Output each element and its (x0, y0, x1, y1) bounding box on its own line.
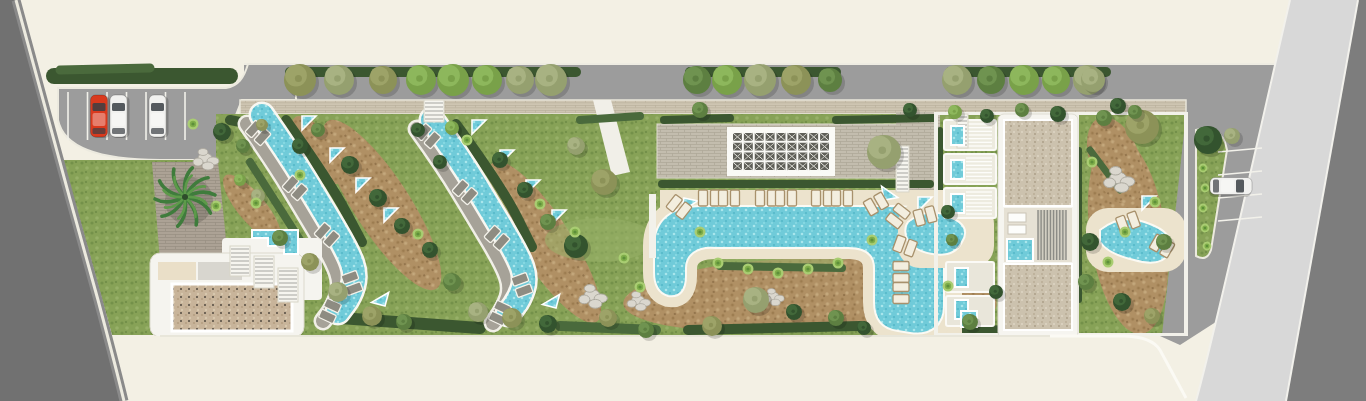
louver-block (966, 124, 992, 146)
tree-canopy-light (745, 65, 767, 87)
groundcover-bush (1103, 257, 1114, 268)
site-plan-rendering (0, 0, 1366, 401)
tree-canopy-light (903, 103, 913, 113)
tree-canopy-light (568, 137, 580, 149)
jacuzzi-pool (1008, 240, 1032, 260)
tree-canopy-light (1195, 127, 1214, 146)
tree-core (522, 187, 526, 191)
bush-core (698, 230, 701, 233)
groundcover-bush (1199, 204, 1208, 213)
tree-canopy-light (639, 322, 650, 333)
staircase (230, 246, 250, 276)
rock (1114, 183, 1128, 193)
lounger (756, 190, 765, 206)
bush-core (946, 284, 949, 287)
groundcover-bush (943, 281, 954, 292)
rock (635, 304, 646, 311)
bush-core (776, 271, 779, 274)
tree-canopy-light (285, 65, 307, 87)
tree-canopy-light (1114, 293, 1126, 305)
roof-gravel-south (1004, 264, 1072, 330)
bush-core (214, 204, 217, 207)
tree-core (643, 327, 647, 331)
bush-core (254, 201, 257, 204)
bush-core (836, 261, 839, 264)
tree-core (334, 75, 341, 82)
tree-core (295, 75, 302, 82)
rock (193, 158, 203, 166)
tree-core (297, 143, 301, 147)
white-car (149, 95, 169, 138)
tree-canopy-light (943, 66, 963, 86)
bush-core (1106, 260, 1109, 263)
tree-canopy-light (1082, 68, 1098, 84)
tree-canopy-light (363, 306, 377, 320)
tree-core (450, 126, 453, 129)
tree-core (1083, 279, 1087, 283)
tree-canopy-light (273, 230, 284, 241)
bush-core (298, 173, 301, 176)
tree-core (755, 75, 762, 82)
tree-canopy-light (980, 109, 990, 119)
bush-core (746, 267, 749, 270)
groundcover-bush (635, 282, 646, 293)
plunge-pool (951, 160, 964, 179)
palm-trunk (182, 194, 188, 200)
tree-canopy-light (600, 309, 612, 321)
tree-canopy-light (703, 316, 717, 330)
tree-canopy-light (989, 285, 999, 295)
rock (771, 299, 781, 305)
deck-furniture (1008, 213, 1026, 222)
red-car (91, 95, 111, 138)
bush-core (716, 261, 719, 264)
tree-canopy-light (302, 253, 314, 265)
lounger (719, 190, 728, 206)
rock (1110, 167, 1122, 175)
tree-canopy-light (423, 242, 434, 253)
tree-core (1161, 239, 1165, 243)
tree-core (256, 194, 259, 197)
tree-core (946, 210, 949, 213)
hedge-row (720, 266, 842, 268)
tree-canopy-light (256, 119, 264, 127)
tree-core (953, 110, 956, 113)
tree-core (238, 178, 241, 181)
tree-core (335, 289, 339, 293)
bush-core (416, 232, 419, 235)
tree-canopy-light (684, 67, 703, 86)
groundcover-bush (188, 119, 199, 130)
hedge-row (664, 118, 730, 120)
tree-canopy-light (342, 156, 354, 168)
rock (579, 295, 590, 304)
tree-core (1052, 76, 1058, 82)
groundcover-bush (743, 264, 754, 275)
tree-canopy-light (857, 321, 867, 331)
tree-canopy-light (541, 214, 552, 225)
tree-canopy-light (819, 68, 835, 84)
tree-core (427, 247, 431, 251)
groundcover-bush (1199, 164, 1208, 173)
car-rear-window (151, 128, 164, 134)
lounger (893, 295, 909, 304)
tree-core (605, 315, 609, 319)
tree-core (791, 309, 795, 313)
tree-core (994, 290, 997, 293)
staircase (278, 268, 298, 302)
bush-core (1206, 245, 1209, 248)
sidewalk (240, 100, 1186, 114)
tree-canopy-light (507, 67, 526, 86)
tree-canopy-light (787, 304, 798, 315)
groundcover-bush (1150, 197, 1161, 208)
car-roof (1221, 180, 1234, 193)
tree-core (952, 75, 959, 82)
tree-core (752, 296, 758, 302)
tree-core (1055, 111, 1059, 115)
lounger (788, 190, 797, 206)
bush-core (638, 285, 641, 288)
groundcover-bush (695, 227, 706, 238)
tree-core (1089, 76, 1094, 81)
tree-canopy-light (518, 182, 529, 193)
tree-canopy-light (1043, 67, 1062, 86)
tree-core (985, 114, 988, 117)
tree-canopy-light (311, 123, 321, 133)
staircase (424, 100, 444, 122)
tree-core (1019, 75, 1026, 82)
tree-canopy-light (370, 67, 389, 86)
tree-core (572, 242, 577, 247)
groundcover-bush (773, 268, 784, 279)
tree-core (908, 108, 911, 111)
tree-core (862, 326, 865, 329)
car-windshield (1236, 180, 1244, 193)
lounger (832, 190, 841, 206)
tree-canopy-light (1111, 98, 1122, 109)
tree-canopy-light (234, 174, 242, 182)
tree-canopy-light (493, 152, 504, 163)
tree-canopy-light (963, 314, 974, 325)
tree-canopy-light (1051, 106, 1062, 117)
tree-core (1119, 299, 1123, 303)
tree-canopy-light (946, 234, 954, 242)
bush-core (1123, 230, 1126, 233)
rock (584, 285, 595, 293)
tree-canopy-light (941, 205, 951, 215)
bush-core (1090, 160, 1093, 163)
hedge-row (580, 116, 640, 120)
tree-core (1020, 108, 1023, 111)
tree-core (573, 143, 577, 147)
car-windshield (151, 103, 164, 111)
foreground-plaza (0, 336, 1192, 401)
tree-core (950, 238, 953, 241)
car-roof (112, 113, 125, 126)
tree-core (987, 76, 993, 82)
courtyard-gravel (172, 284, 292, 331)
bush-core (1204, 227, 1207, 230)
hedge-row (836, 118, 934, 120)
bush-core (1153, 200, 1156, 203)
groundcover-bush (535, 199, 546, 210)
tree-core (509, 315, 513, 319)
groundcover-bush (1087, 157, 1098, 168)
tree-canopy-light (713, 66, 733, 86)
louver-block (966, 192, 992, 214)
roof-gravel-north (1004, 120, 1072, 206)
tree-canopy-light (868, 136, 891, 159)
tree-core (879, 147, 886, 154)
tree-core (347, 162, 351, 166)
car-windshield (93, 103, 106, 111)
tree-canopy-light (395, 218, 406, 229)
groundcover-bush (1120, 227, 1131, 238)
lounger (731, 190, 740, 206)
lounger (893, 283, 909, 292)
groundcover-bush (1201, 184, 1210, 193)
tree-core (1149, 313, 1153, 317)
rock (202, 162, 214, 170)
tree-canopy-light (1145, 308, 1156, 319)
lounger (812, 190, 821, 206)
white-car (110, 95, 130, 138)
pool-columns (649, 194, 656, 258)
tree-canopy-light (978, 67, 997, 86)
tree-core (697, 107, 701, 111)
tree-canopy-light (592, 170, 610, 188)
tree-core (1137, 122, 1144, 129)
tree-canopy-light (503, 308, 517, 322)
tree-core (693, 76, 699, 82)
groundcover-bush (619, 253, 630, 264)
tree-canopy-light (433, 155, 443, 165)
bush-core (538, 202, 541, 205)
light-patch (545, 218, 655, 262)
tree-core (219, 129, 223, 133)
tree-core (448, 75, 455, 82)
rock (198, 149, 208, 156)
bush-core (465, 138, 468, 141)
tree-core (260, 123, 263, 126)
groundcover-bush (570, 227, 581, 238)
tree-core (546, 75, 553, 82)
tree-core (1087, 239, 1091, 243)
rock (589, 299, 602, 308)
tree-canopy-light (1015, 103, 1025, 113)
groundcover-bush (803, 264, 814, 275)
tree-core (600, 178, 606, 184)
tree-core (316, 128, 319, 131)
lounger (893, 262, 909, 271)
groundcover-bush (1203, 242, 1212, 251)
rock (767, 288, 775, 294)
lounger (844, 190, 853, 206)
groundcover-bush (462, 135, 473, 146)
car-rear-window (112, 128, 125, 134)
car-rear-window (1213, 180, 1219, 193)
tree-canopy-light (693, 102, 704, 113)
tree-canopy-light (469, 302, 483, 316)
tree-canopy-light (214, 123, 226, 135)
tree-core (833, 315, 837, 319)
tree-core (1229, 133, 1233, 137)
tree-core (369, 313, 373, 317)
tree-canopy-light (829, 310, 840, 321)
tree-core (826, 76, 831, 81)
tree-core (438, 160, 441, 163)
groundcover-bush (713, 258, 724, 269)
tree-core (277, 235, 281, 239)
car-roof (93, 113, 106, 126)
lounger (699, 190, 708, 206)
groundcover-bush (1201, 224, 1210, 233)
car-roof (151, 113, 164, 126)
tree-core (241, 144, 244, 147)
groundcover-bush (413, 229, 424, 240)
tree-canopy-light (744, 288, 762, 306)
tree-canopy-light (236, 139, 246, 149)
tree-core (449, 279, 453, 283)
tree-core (791, 75, 798, 82)
tree-core (1101, 115, 1105, 119)
groundcover-bush (867, 235, 878, 246)
stair-body (278, 268, 298, 302)
tree-canopy-light (438, 65, 460, 87)
white-car (1209, 178, 1252, 198)
tree-core (482, 75, 489, 82)
bush-core (870, 238, 873, 241)
tree-core (1115, 103, 1119, 107)
tree-canopy-light (293, 138, 304, 149)
rock (627, 300, 636, 307)
tree-core (401, 319, 405, 323)
tree-canopy-light (370, 189, 382, 201)
tree-canopy-light (1097, 110, 1108, 121)
tree-canopy-light (473, 66, 493, 86)
tree-canopy-light (1082, 233, 1094, 245)
hedge-row (60, 68, 150, 70)
bush-core (1202, 167, 1205, 170)
plunge-pool (955, 268, 968, 287)
tree-canopy-light (1079, 274, 1090, 285)
bush-core (191, 122, 194, 125)
groundcover-bush (251, 198, 262, 209)
louver-block (966, 158, 992, 180)
tree-core (1204, 136, 1210, 142)
pergola-grid (727, 127, 835, 176)
tree-core (722, 75, 729, 82)
tree-canopy-light (948, 105, 958, 115)
tree-canopy-light (411, 123, 421, 133)
tree-canopy-light (536, 65, 558, 87)
tree-core (497, 157, 501, 161)
tree-canopy-light (445, 121, 455, 131)
tree-canopy-light (325, 66, 345, 86)
tree-canopy-light (407, 66, 427, 86)
tree-canopy-light (1157, 234, 1168, 245)
louver-roof (1038, 210, 1066, 260)
tree-core (967, 319, 971, 323)
tree-canopy-light (1225, 128, 1236, 139)
tree-canopy-light (782, 66, 802, 86)
tree-core (1133, 110, 1136, 113)
car-rear-window (93, 128, 106, 134)
bush-core (622, 256, 625, 259)
tree-core (307, 259, 311, 263)
site-plan-svg (0, 0, 1366, 401)
rock (1104, 178, 1116, 188)
tree-canopy-light (329, 282, 343, 296)
tree-core (375, 195, 379, 199)
staircase (254, 256, 274, 288)
tree-core (475, 309, 479, 313)
bush-core (1204, 187, 1207, 190)
groundcover-bush (295, 170, 306, 181)
plunge-pool (951, 126, 964, 145)
car-windshield (112, 103, 125, 111)
tree-canopy-light (397, 314, 408, 325)
bush-core (573, 230, 576, 233)
tree-core (379, 76, 385, 82)
tree-canopy-light (540, 315, 552, 327)
tree-core (416, 75, 423, 82)
deck-furniture (1008, 225, 1026, 234)
bush-core (806, 267, 809, 270)
tree-core (709, 323, 713, 327)
tree-canopy-light (251, 189, 261, 199)
lounger (776, 190, 785, 206)
tree-canopy-light (1010, 66, 1030, 86)
tree-canopy-light (1128, 105, 1138, 115)
tree-canopy-light (444, 273, 456, 285)
bush-core (1202, 207, 1205, 210)
tree-core (399, 223, 403, 227)
groundcover-bush (833, 258, 844, 269)
tree-core (416, 128, 419, 131)
lounger (893, 274, 909, 283)
tree-core (545, 321, 549, 325)
tree-core (545, 219, 549, 223)
tree-core (516, 76, 522, 82)
